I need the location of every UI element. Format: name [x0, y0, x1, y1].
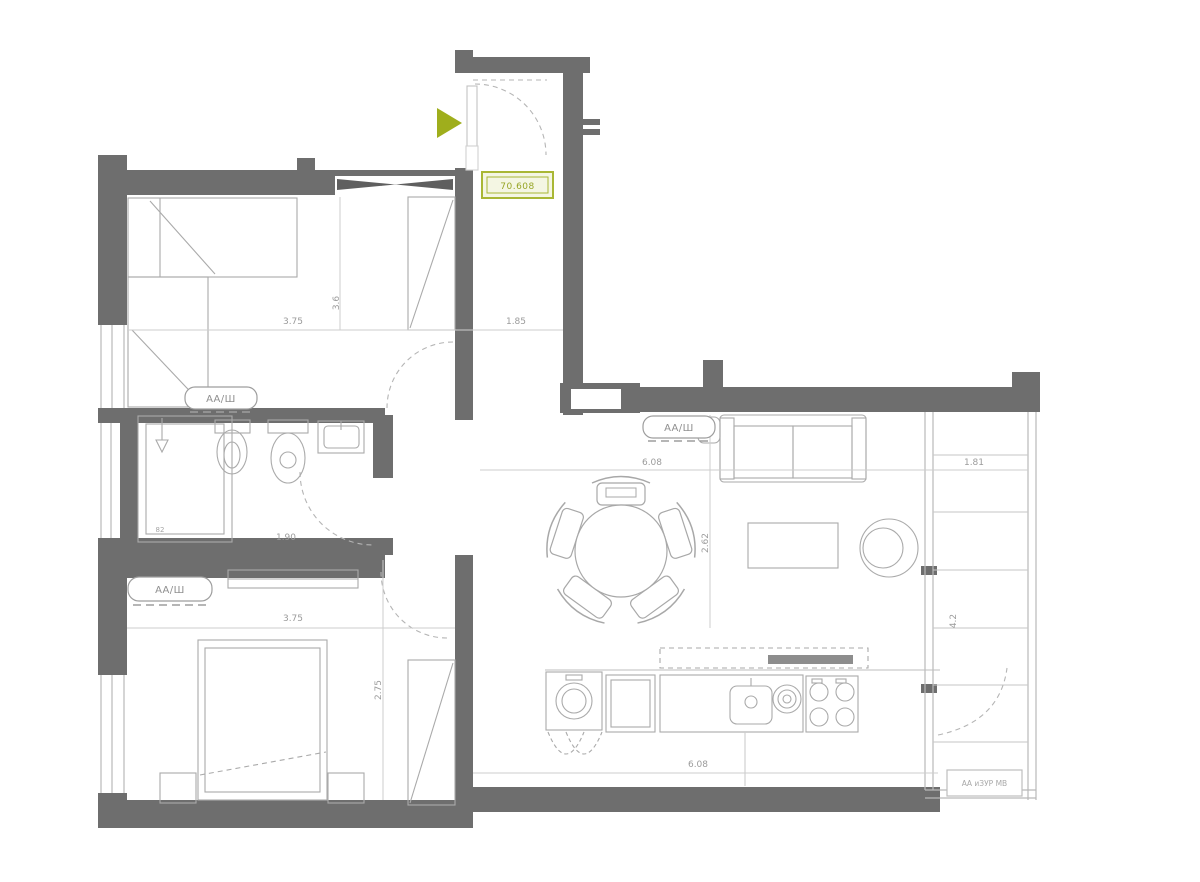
dim-kitchen-width: 6.08: [688, 760, 708, 770]
floor-plan-drawing: 3.75 3.6 1.85 6.08 2.62 1.81 4.2 3.75 2.…: [0, 0, 1200, 882]
armchair: [860, 519, 918, 577]
dining-set: [541, 477, 701, 629]
counter: [660, 675, 803, 732]
kitchen-sink: [730, 686, 772, 724]
dim-shower-depth: 82: [156, 526, 165, 534]
dim-bathroom-width: 1.90: [276, 533, 296, 543]
dim-corridor-width: 1.85: [506, 317, 526, 327]
area-label-text: 70.608: [500, 182, 535, 192]
washing-machine: [546, 672, 602, 730]
dim-bedroom1-height: 3.6: [332, 296, 342, 311]
window-label-bedroom1: АА/Ш: [185, 387, 257, 412]
svg-text:АА/Ш: АА/Ш: [206, 394, 236, 405]
nightstand: [160, 773, 196, 803]
dim-living-width: 6.08: [642, 458, 662, 468]
window-label-living: АА/Ш: [643, 416, 715, 441]
cooker-hood: [768, 655, 853, 664]
dim-living-height: 2.62: [701, 533, 711, 553]
coffee-table: [748, 523, 838, 568]
balcony-tag: АА иЗУР МВ: [947, 770, 1022, 796]
bed-single: [128, 198, 297, 277]
shower: [138, 416, 232, 542]
cabinet: [606, 675, 655, 732]
svg-text:АА/Ш: АА/Ш: [664, 423, 694, 434]
toilet: [271, 433, 305, 483]
area-label: 70.608: [482, 172, 553, 198]
walls: [98, 50, 1040, 828]
kitchen-units: [545, 648, 940, 786]
round-sink: [773, 685, 801, 713]
bathroom-fixtures: [138, 416, 364, 542]
balcony-deck-lines: [933, 455, 1028, 742]
window-label-bedroom2: АА/Ш: [128, 577, 212, 605]
living-furniture: [698, 415, 918, 577]
svg-text:АА иЗУР МВ: АА иЗУР МВ: [962, 779, 1007, 788]
dim-bedroom2-width: 3.75: [283, 614, 303, 624]
dining-table: [575, 505, 667, 597]
dim-balcony-height: 4.2: [949, 614, 959, 628]
dim-balcony-width: 1.81: [964, 458, 984, 468]
floor-plan: 3.75 3.6 1.85 6.08 2.62 1.81 4.2 3.75 2.…: [0, 0, 1200, 882]
bed-double: [198, 640, 327, 800]
entry-arrow-icon: [437, 108, 462, 138]
dim-bedroom2-height: 2.75: [374, 680, 384, 700]
dim-bedroom1-width: 3.75: [283, 317, 303, 327]
bedroom1-furniture: [128, 197, 455, 407]
svg-text:АА/Ш: АА/Ш: [155, 585, 185, 596]
nightstand: [328, 773, 364, 803]
